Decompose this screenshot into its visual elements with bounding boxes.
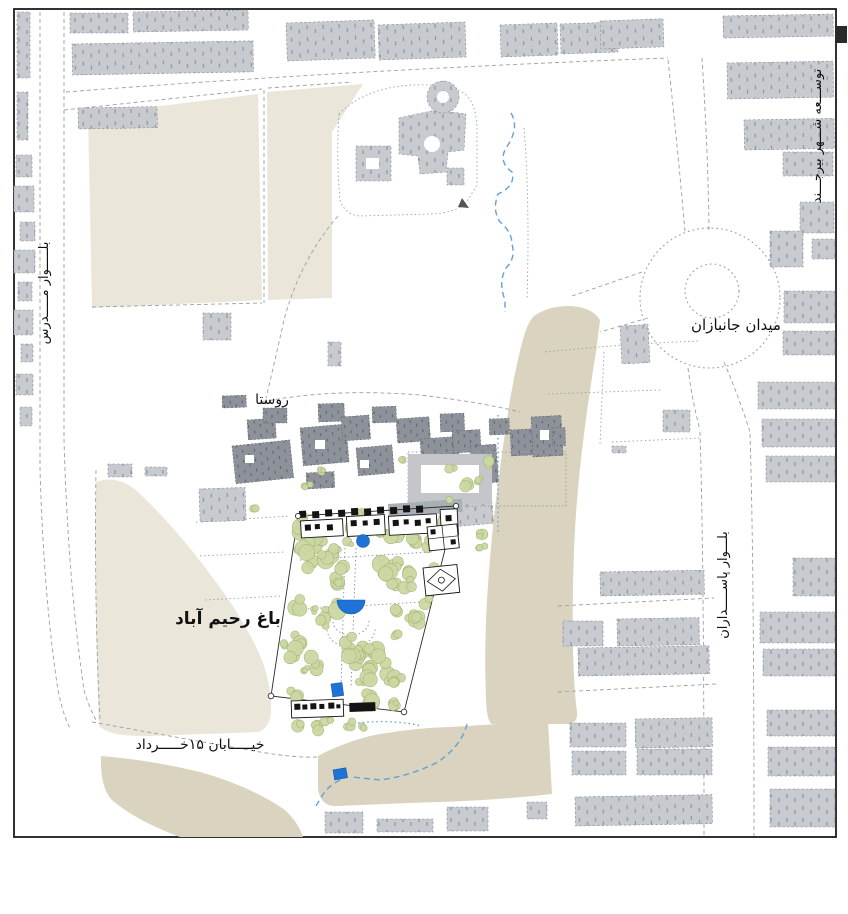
tree-canopy [313,605,319,611]
pool-rect [333,768,348,780]
village-building [489,418,510,435]
building-block [767,710,835,736]
tree-canopy [363,673,377,687]
tree-canopy [394,630,402,638]
tree-canopy [476,533,482,539]
tree-canopy [304,650,318,664]
building-block [760,612,835,643]
building-block [325,812,363,833]
east-kiosk-plan [423,564,460,595]
building-block [766,456,835,482]
building-block [16,374,33,395]
building-block [70,13,128,33]
building-block [578,646,709,676]
building-block [663,410,690,432]
building-block [784,291,835,323]
building-block [572,751,626,775]
label-pasdaran-blvd: بلـــوار پاســـــداران [716,531,731,638]
label-15khordad-street: خیـــــابان ۱۵خـــــرداد [136,737,265,753]
building-block [758,382,835,409]
garden-pool-rect [331,682,344,696]
building-block [635,718,712,748]
tree-canopy [252,505,259,512]
tree-canopy [316,615,326,625]
village-building [341,415,371,441]
village-building [222,395,246,408]
label-village: روستا [255,392,289,408]
tree-canopy [476,544,483,551]
building-block [770,231,803,267]
tree-canopy [302,668,307,673]
tree-canopy [302,562,314,574]
building-block [600,570,704,596]
site-plan-page: توســـعه شـــهر بیرجـــند میدان جانبازان… [0,0,848,914]
label-janbazan-square: میدان جانبازان [691,316,781,334]
garden-corner-node [401,709,407,715]
tree-canopy [280,640,288,648]
tree-canopy [390,604,401,615]
building-block [286,20,375,61]
corner-mark [835,26,847,43]
tree-canopy [379,567,394,582]
tree-canopy [483,456,494,467]
building-block [763,649,835,676]
tree-canopy [313,725,324,736]
building-block [500,23,558,57]
tree-canopy [341,649,356,664]
building-block [800,202,834,233]
building-block [783,152,833,176]
garden-corner-node [295,513,300,518]
building-block [447,807,488,831]
building-block [16,155,32,177]
tree-canopy [299,544,315,560]
tree-canopy [389,677,399,687]
tree-canopy [349,542,354,547]
tree-canopy [412,612,422,622]
building-block [600,19,664,49]
tree-canopy [296,720,304,728]
building-block [812,239,835,259]
village-building [552,428,566,446]
tree-canopy [360,724,367,731]
building-block [793,558,835,596]
building-block [17,12,30,78]
village-building [232,440,294,484]
tree-canopy [302,484,308,490]
building-block [328,342,341,366]
building-block [612,446,626,453]
tree-canopy [407,582,417,592]
garden-corner-node [453,503,458,508]
tree-canopy [371,649,386,664]
building-block [14,250,35,273]
village-building [263,408,287,423]
east-pavilion-plan [427,524,459,551]
building-block [18,282,32,301]
building-block [575,795,712,826]
building-block [21,344,33,362]
building-block [199,487,246,522]
building-block [20,407,32,426]
building-block [447,168,464,185]
building-block [783,331,835,355]
building-block [770,789,835,827]
tree-canopy [327,717,333,723]
tree-canopy [460,481,471,492]
pool-circle [357,535,370,548]
tree-canopy [335,563,347,575]
tree-canopy [318,550,327,559]
village-building [440,413,465,432]
building-block [620,325,650,364]
building-block [723,14,833,38]
building-block [203,313,231,340]
tree-canopy [295,594,305,604]
tree-canopy [475,477,482,484]
building-block [14,310,33,335]
building-block [133,10,248,32]
tree-canopy [348,718,356,726]
tree-canopy [335,579,343,587]
label-modarres-blvd: بلـــــوار مـــــدرس [37,242,52,345]
tree-canopy [398,457,404,463]
building-block [617,618,699,646]
building-block [762,419,835,447]
building-block [570,723,626,747]
building-block [20,222,35,241]
village-building [318,403,345,422]
building-block [527,802,547,819]
building-block [108,464,132,477]
building-block [78,107,157,129]
building-block [145,467,167,476]
village-building [372,406,397,423]
label-rahimabad-garden: باغ رحیم آباد [175,607,281,629]
tree-canopy [446,496,453,503]
building-block [72,41,254,75]
building-block [637,749,712,775]
building-block [378,22,466,60]
tree-canopy [321,468,326,473]
tree-canopy [284,651,297,664]
tree-canopy [393,700,398,705]
tree-canopy [347,632,357,642]
label-birjand-expansion: توســـعه شـــهر بیرجـــند [810,68,825,203]
building-block [17,92,28,140]
building-block [563,621,603,646]
site-plan-map: توســـعه شـــهر بیرجـــند میدان جانبازان… [0,0,848,914]
building-block [14,186,34,212]
tree-canopy [445,464,454,473]
garden-corner-node [268,693,274,699]
building-block [768,747,835,776]
building-block [377,819,433,832]
